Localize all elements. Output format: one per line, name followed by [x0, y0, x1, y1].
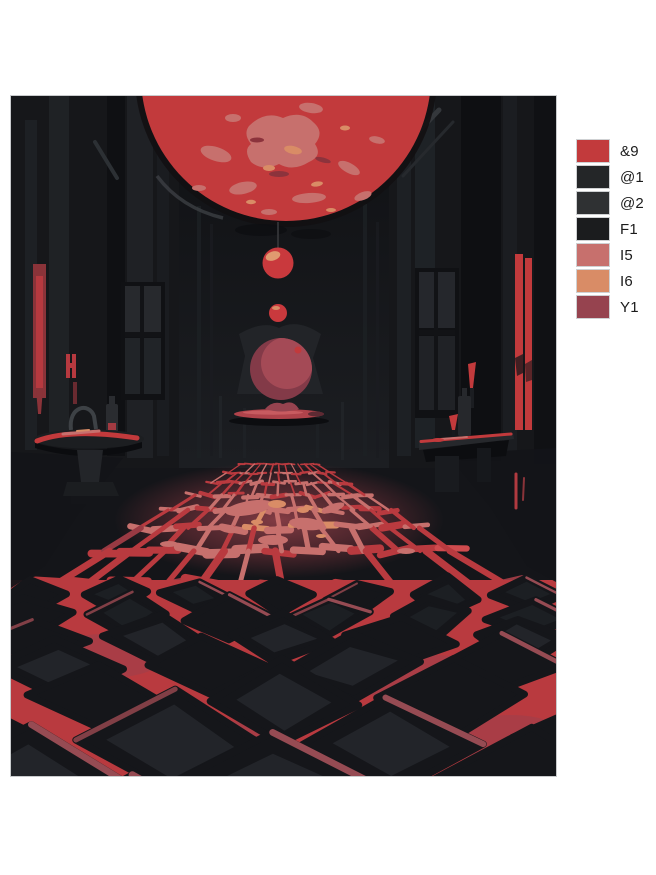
legend-row: @1: [576, 165, 644, 189]
legend-row: F1: [576, 217, 644, 241]
legend-row: I6: [576, 269, 644, 293]
legend-row: Y1: [576, 295, 644, 319]
color-code: @2: [620, 195, 644, 212]
color-code: Y1: [620, 299, 639, 316]
color-code: &9: [620, 143, 639, 160]
color-swatch: [576, 269, 610, 293]
color-code: I5: [620, 247, 633, 264]
artwork-illustration: [11, 96, 556, 776]
legend-row: @2: [576, 191, 644, 215]
color-swatch: [576, 217, 610, 241]
color-code: F1: [620, 221, 638, 238]
color-code: I6: [620, 273, 633, 290]
left-wall: [11, 96, 179, 468]
artwork-canvas: [10, 95, 557, 777]
color-code: @1: [620, 169, 644, 186]
color-swatch: [576, 243, 610, 267]
color-legend: &9 @1 @2 F1 I5 I6 Y1: [576, 139, 644, 319]
page: &9 @1 @2 F1 I5 I6 Y1: [0, 0, 656, 875]
color-swatch: [576, 295, 610, 319]
color-swatch: [576, 139, 610, 163]
right-curtain-glow: [515, 254, 523, 430]
legend-row: &9: [576, 139, 644, 163]
color-swatch: [576, 165, 610, 189]
color-swatch: [576, 191, 610, 215]
bottle: [458, 396, 471, 436]
legend-row: I5: [576, 243, 644, 267]
